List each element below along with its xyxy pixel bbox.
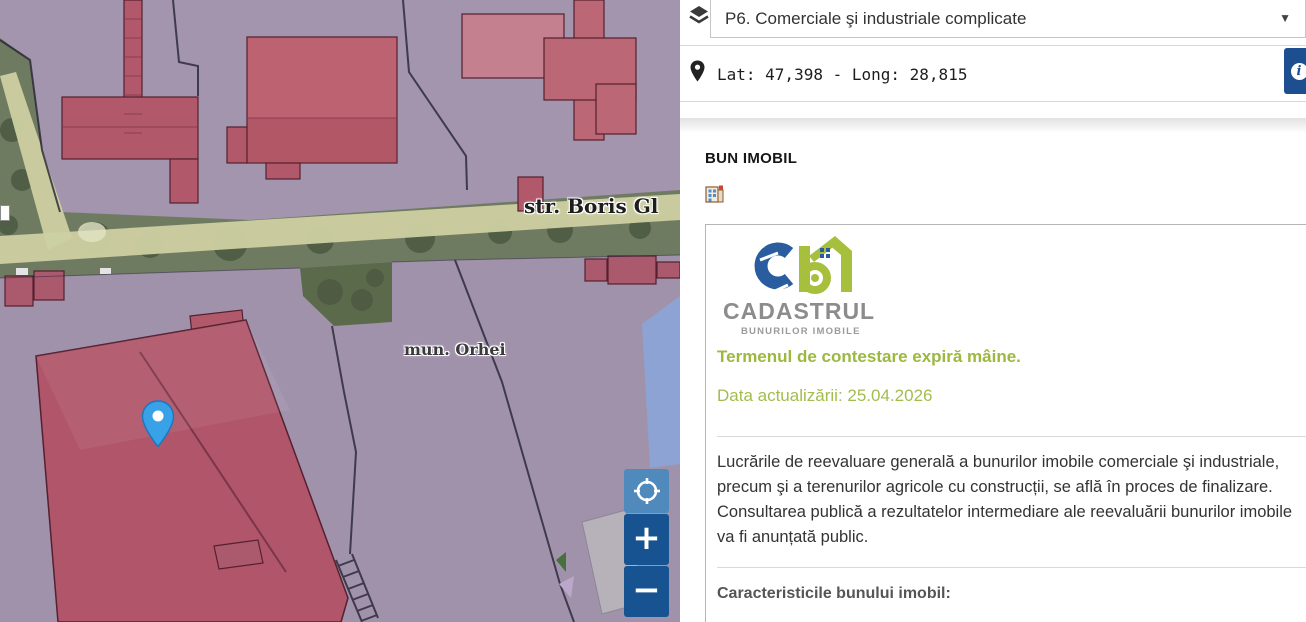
map-controls: + −	[624, 469, 669, 618]
satellite-overlay-graphic	[0, 0, 680, 622]
info-icon: i	[1291, 63, 1306, 80]
property-card: CADASTRUL BUNURILOR IMOBILE Termenul de …	[705, 224, 1306, 622]
property-section: BUN IMOBIL	[680, 150, 1306, 622]
layer-select-value: P6. Comerciale şi industriale complicate	[725, 9, 1026, 29]
contest-deadline-notice: Termenul de contestare expiră mâine.	[717, 347, 1306, 367]
layers-icon	[688, 4, 710, 28]
partial-map-label	[0, 205, 10, 221]
layer-select-dropdown[interactable]: P6. Comerciale şi industriale complicate…	[710, 0, 1306, 38]
map-pin-icon	[141, 400, 175, 448]
app-window: str. Boris Gl mun. Orhei + −	[0, 0, 1306, 622]
municipality-label: mun. Orhei	[404, 340, 506, 359]
zoom-in-button[interactable]: +	[624, 514, 669, 565]
info-button[interactable]: i	[1284, 48, 1306, 94]
location-pin-icon	[690, 60, 705, 82]
divider	[717, 567, 1306, 568]
reevaluation-announcement: Lucrările de reevaluare generală a bunur…	[717, 450, 1306, 550]
divider	[717, 436, 1306, 437]
layer-select-row: P6. Comerciale şi industriale complicate…	[680, 0, 1306, 45]
crosshair-icon	[634, 478, 660, 504]
cadastru-logo: CADASTRUL BUNURILOR IMOBILE	[717, 234, 1306, 347]
map-marker-pin[interactable]	[141, 400, 175, 453]
content-top-shadow	[680, 118, 1306, 133]
zoom-out-button[interactable]: −	[624, 566, 669, 617]
section-title: BUN IMOBIL	[705, 150, 1306, 167]
street-name-label: str. Boris Gl	[524, 194, 658, 218]
update-date: Data actualizării: 25.04.2026	[717, 386, 1306, 406]
building-icon[interactable]	[705, 184, 725, 203]
locate-button[interactable]	[624, 469, 669, 513]
info-panel: P6. Comerciale şi industriale complicate…	[680, 0, 1306, 622]
map-canvas[interactable]: str. Boris Gl mun. Orhei + −	[0, 0, 680, 622]
coordinates-row: Lat: 47,398 - Long: 28,815 i	[680, 46, 1306, 101]
lat-long-readout: Lat: 47,398 - Long: 28,815	[717, 63, 967, 84]
characteristics-heading: Caracteristicile bunului imobil:	[717, 585, 1306, 603]
chevron-down-icon: ▼	[1279, 11, 1291, 25]
logo-title: CADASTRUL	[723, 298, 875, 325]
logo-subtitle: BUNURILOR IMOBILE	[741, 326, 861, 337]
cadastru-logo-icon	[747, 234, 877, 300]
